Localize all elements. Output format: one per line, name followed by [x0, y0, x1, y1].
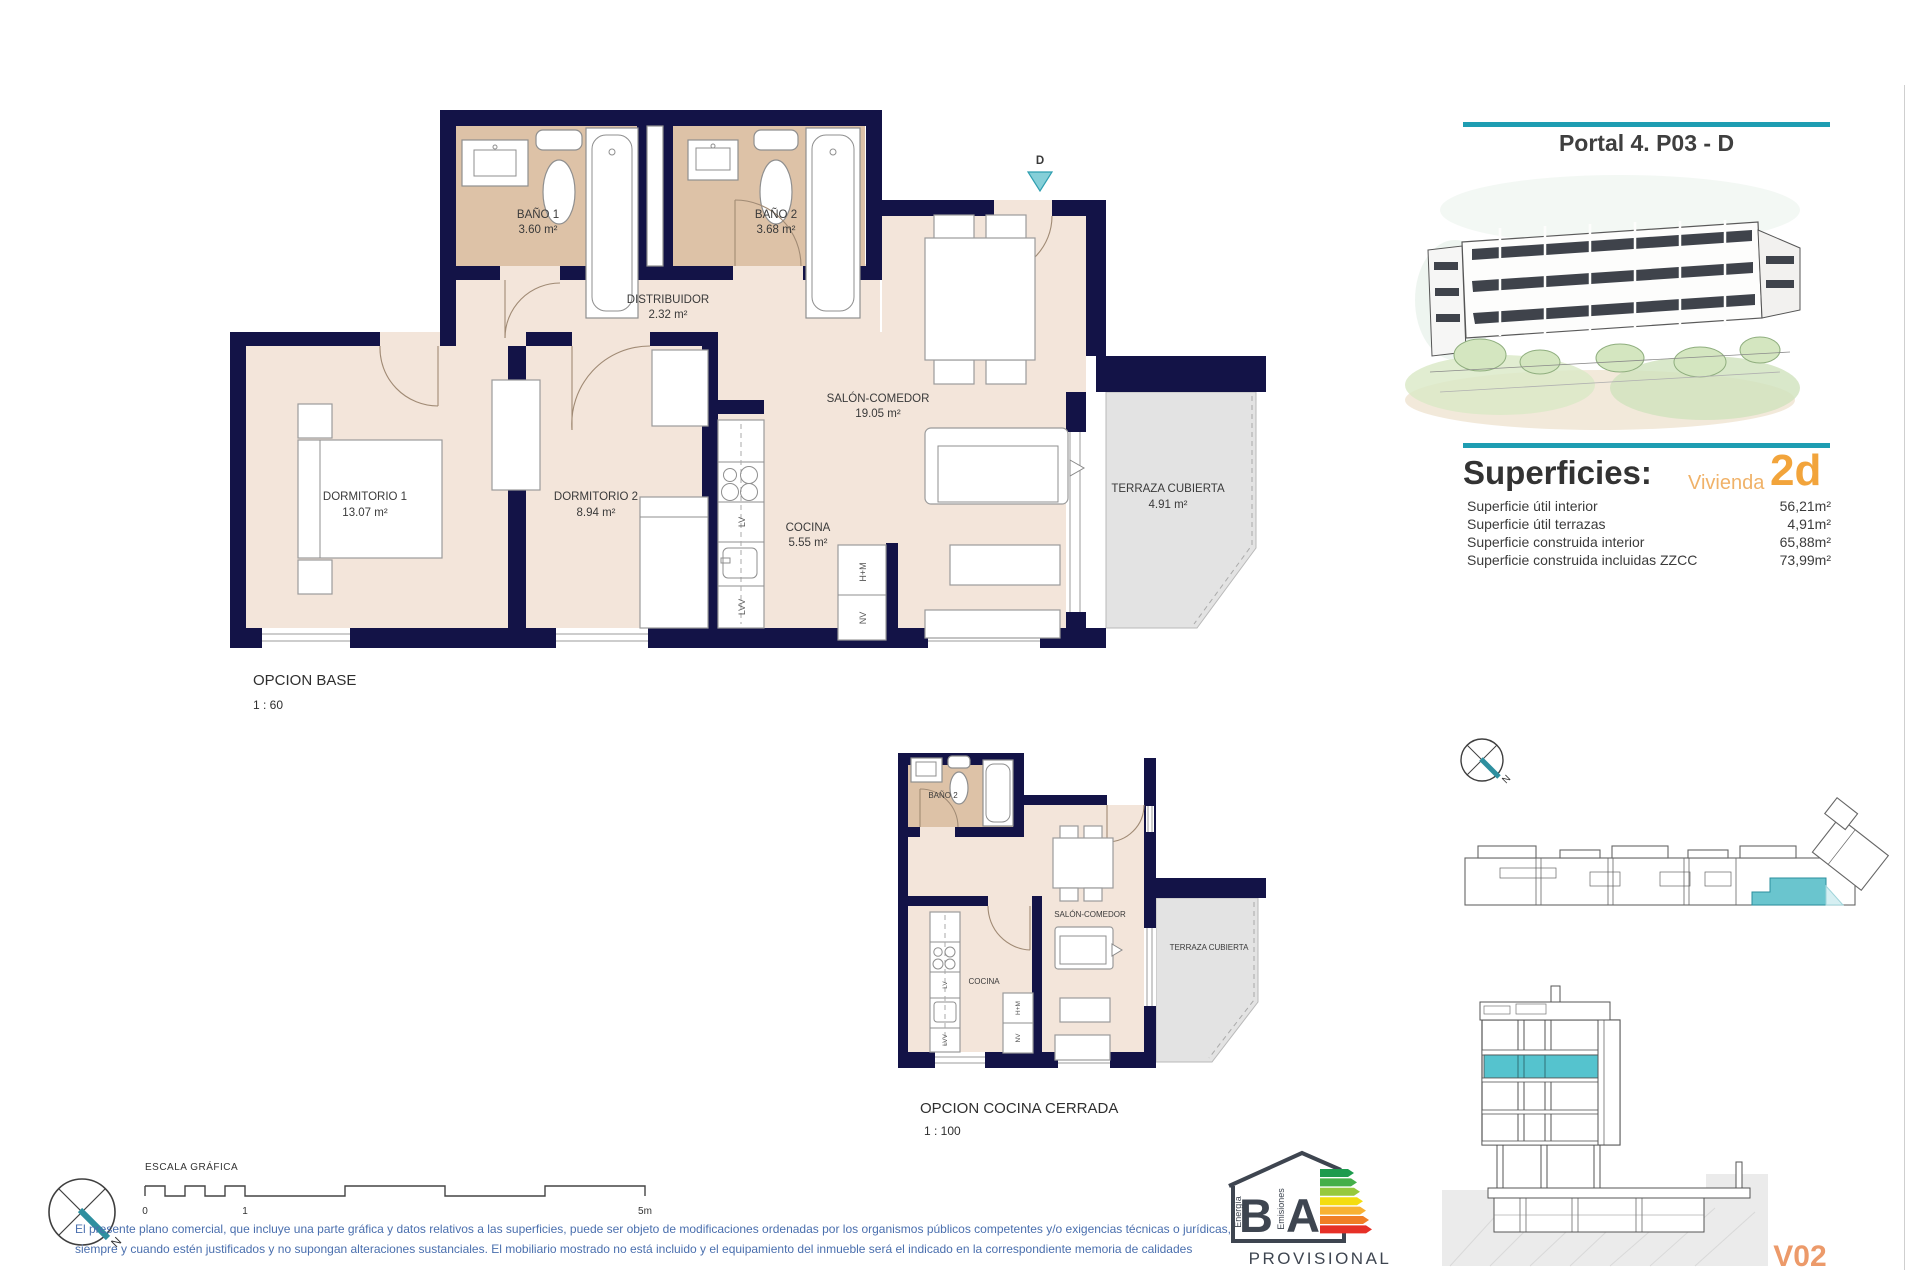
tall-unit-small: H+M NV: [1003, 993, 1033, 1053]
sheet-edge-line: [1904, 85, 1905, 1270]
appliance-label-lv: LV: [942, 981, 949, 989]
superficies-row: Superficie útil terrazas 4,91m²: [1467, 515, 1831, 533]
floorplan-opcion-cocina-cerrada: LV LVV H+M NV BAÑO 2 SALÓN-COMEDOR: [898, 753, 1266, 1068]
vivienda-label: Vivienda: [1688, 472, 1764, 495]
superficies-row: Superficie útil interior 56,21m²: [1467, 497, 1831, 515]
energy-letter-a: A: [1286, 1189, 1320, 1242]
appliance-label-lv: LV: [737, 517, 747, 527]
scale-tick: 0: [142, 1206, 148, 1217]
appliance-label-hm: H+M: [858, 562, 868, 581]
title-rule: [1463, 122, 1830, 127]
energy-label-emisiones: Emisiones: [1276, 1188, 1286, 1230]
scale-bar-label: ESCALA GRÁFICA: [145, 1162, 238, 1173]
room-label: BAÑO 2: [755, 208, 797, 221]
room-area: 8.94 m²: [577, 507, 616, 519]
plan-base-title: OPCION BASE: [253, 672, 356, 689]
room-area: 3.60 m²: [519, 224, 558, 236]
room-label: SALÓN-COMEDOR: [827, 392, 930, 405]
room-label: TERRAZA CUBIERTA: [1111, 483, 1225, 495]
compass-sidebar: N: [1461, 739, 1513, 786]
sheet-code: V02: [1773, 1240, 1826, 1273]
appliance-label-lvv: LVV: [737, 599, 747, 615]
room-label: COCINA: [786, 522, 831, 534]
sheet-graphics: LV LVV H+M NV: [0, 0, 1920, 1280]
tall-unit: H+M NV: [838, 545, 886, 640]
superficies-row: Superficie construida interior 65,88m²: [1467, 533, 1831, 551]
room-label: DORMITORIO 1: [323, 491, 407, 503]
room-area: 5.55 m²: [789, 537, 828, 549]
shaft: [647, 126, 663, 266]
disclaimer-line2: siempre y cuando estén justificados y no…: [75, 1242, 1192, 1256]
kitchen-counter-small: LV LVV: [930, 912, 960, 1052]
appliance-label-hm: H+M: [1015, 1001, 1022, 1015]
room-area: 2.32 m²: [649, 309, 688, 321]
appliance-label-nv: NV: [858, 612, 868, 625]
energy-letter-b: B: [1239, 1189, 1273, 1242]
plan-base-scale: 1 : 60: [253, 698, 283, 712]
dining-table: [925, 238, 1035, 360]
site-key-plan: [1465, 798, 1897, 905]
floorplan-opcion-base: LV LVV H+M NV: [230, 110, 1266, 648]
room-area: 4.91 m²: [1149, 499, 1188, 511]
kitchen-counter: LV LVV: [718, 420, 764, 628]
room-label: BAÑO 2: [928, 791, 958, 800]
entry-triangle-icon: [1028, 172, 1052, 191]
entry-label: D: [1036, 155, 1044, 167]
wardrobe: [492, 380, 540, 490]
plan-sheet: LV LVV H+M NV: [0, 0, 1920, 1280]
page-title: Portal 4. P03 - D: [1463, 130, 1830, 157]
room-area: 13.07 m²: [342, 507, 388, 519]
superficies-table: Superficie útil interior 56,21m² Superfi…: [1467, 497, 1831, 569]
room-area: 3.68 m²: [757, 224, 796, 236]
superficies-row: Superficie construida incluidas ZZCC 73,…: [1467, 551, 1831, 569]
energy-rating-logo: B A Energía Emisiones PROVISIONAL: [1229, 1153, 1391, 1268]
energy-label-energia: Energía: [1233, 1196, 1243, 1228]
compass-main: N: [49, 1179, 124, 1250]
sofa: [925, 428, 1068, 504]
superficies-row-label: Superficie construida interior: [1467, 533, 1644, 551]
room-label: TERRAZA CUBIERTA: [1170, 943, 1249, 952]
superficies-row-value: 56,21m²: [1780, 497, 1831, 515]
room-label: COCINA: [968, 977, 1000, 986]
room-label: DISTRIBUIDOR: [627, 294, 709, 306]
superficies-row-value: 4,91m²: [1787, 515, 1831, 533]
room-label: BAÑO 1: [517, 208, 559, 221]
superficies-row-label: Superficie útil terrazas: [1467, 515, 1606, 533]
scale-tick: 1: [242, 1206, 248, 1217]
superficies-row-value: 73,99m²: [1780, 551, 1831, 569]
building-illustration: [1405, 175, 1800, 430]
plan-cerrada-scale: 1 : 100: [924, 1124, 961, 1138]
entry-marker: D: [1028, 155, 1052, 191]
room-area: 19.05 m²: [855, 408, 901, 420]
plan-cerrada-title: OPCION COCINA CERRADA: [920, 1100, 1118, 1117]
scale-tick: 5m: [638, 1206, 652, 1217]
superficies-row-value: 65,88m²: [1780, 533, 1831, 551]
superficies-heading: Superficies:: [1463, 454, 1652, 492]
scale-bar: 0 1 5m: [142, 1186, 652, 1217]
appliance-label-nv: NV: [1015, 1033, 1022, 1043]
appliance-label-lvv: LVV: [942, 1033, 949, 1045]
energy-arrows-icon: [1320, 1169, 1372, 1233]
room-label: DORMITORIO 2: [554, 491, 638, 503]
superficies-row-label: Superficie útil interior: [1467, 497, 1598, 515]
compass-north-label: N: [1500, 773, 1513, 786]
energy-status: PROVISIONAL: [1249, 1249, 1392, 1268]
superficies-row-label: Superficie construida incluidas ZZCC: [1467, 551, 1697, 569]
vivienda-code: 2d: [1770, 446, 1821, 496]
room-label: SALÓN-COMEDOR: [1054, 910, 1126, 919]
disclaimer-line1: El presente plano comercial, que incluye…: [75, 1222, 1231, 1236]
building-section: V02: [1442, 986, 1827, 1273]
